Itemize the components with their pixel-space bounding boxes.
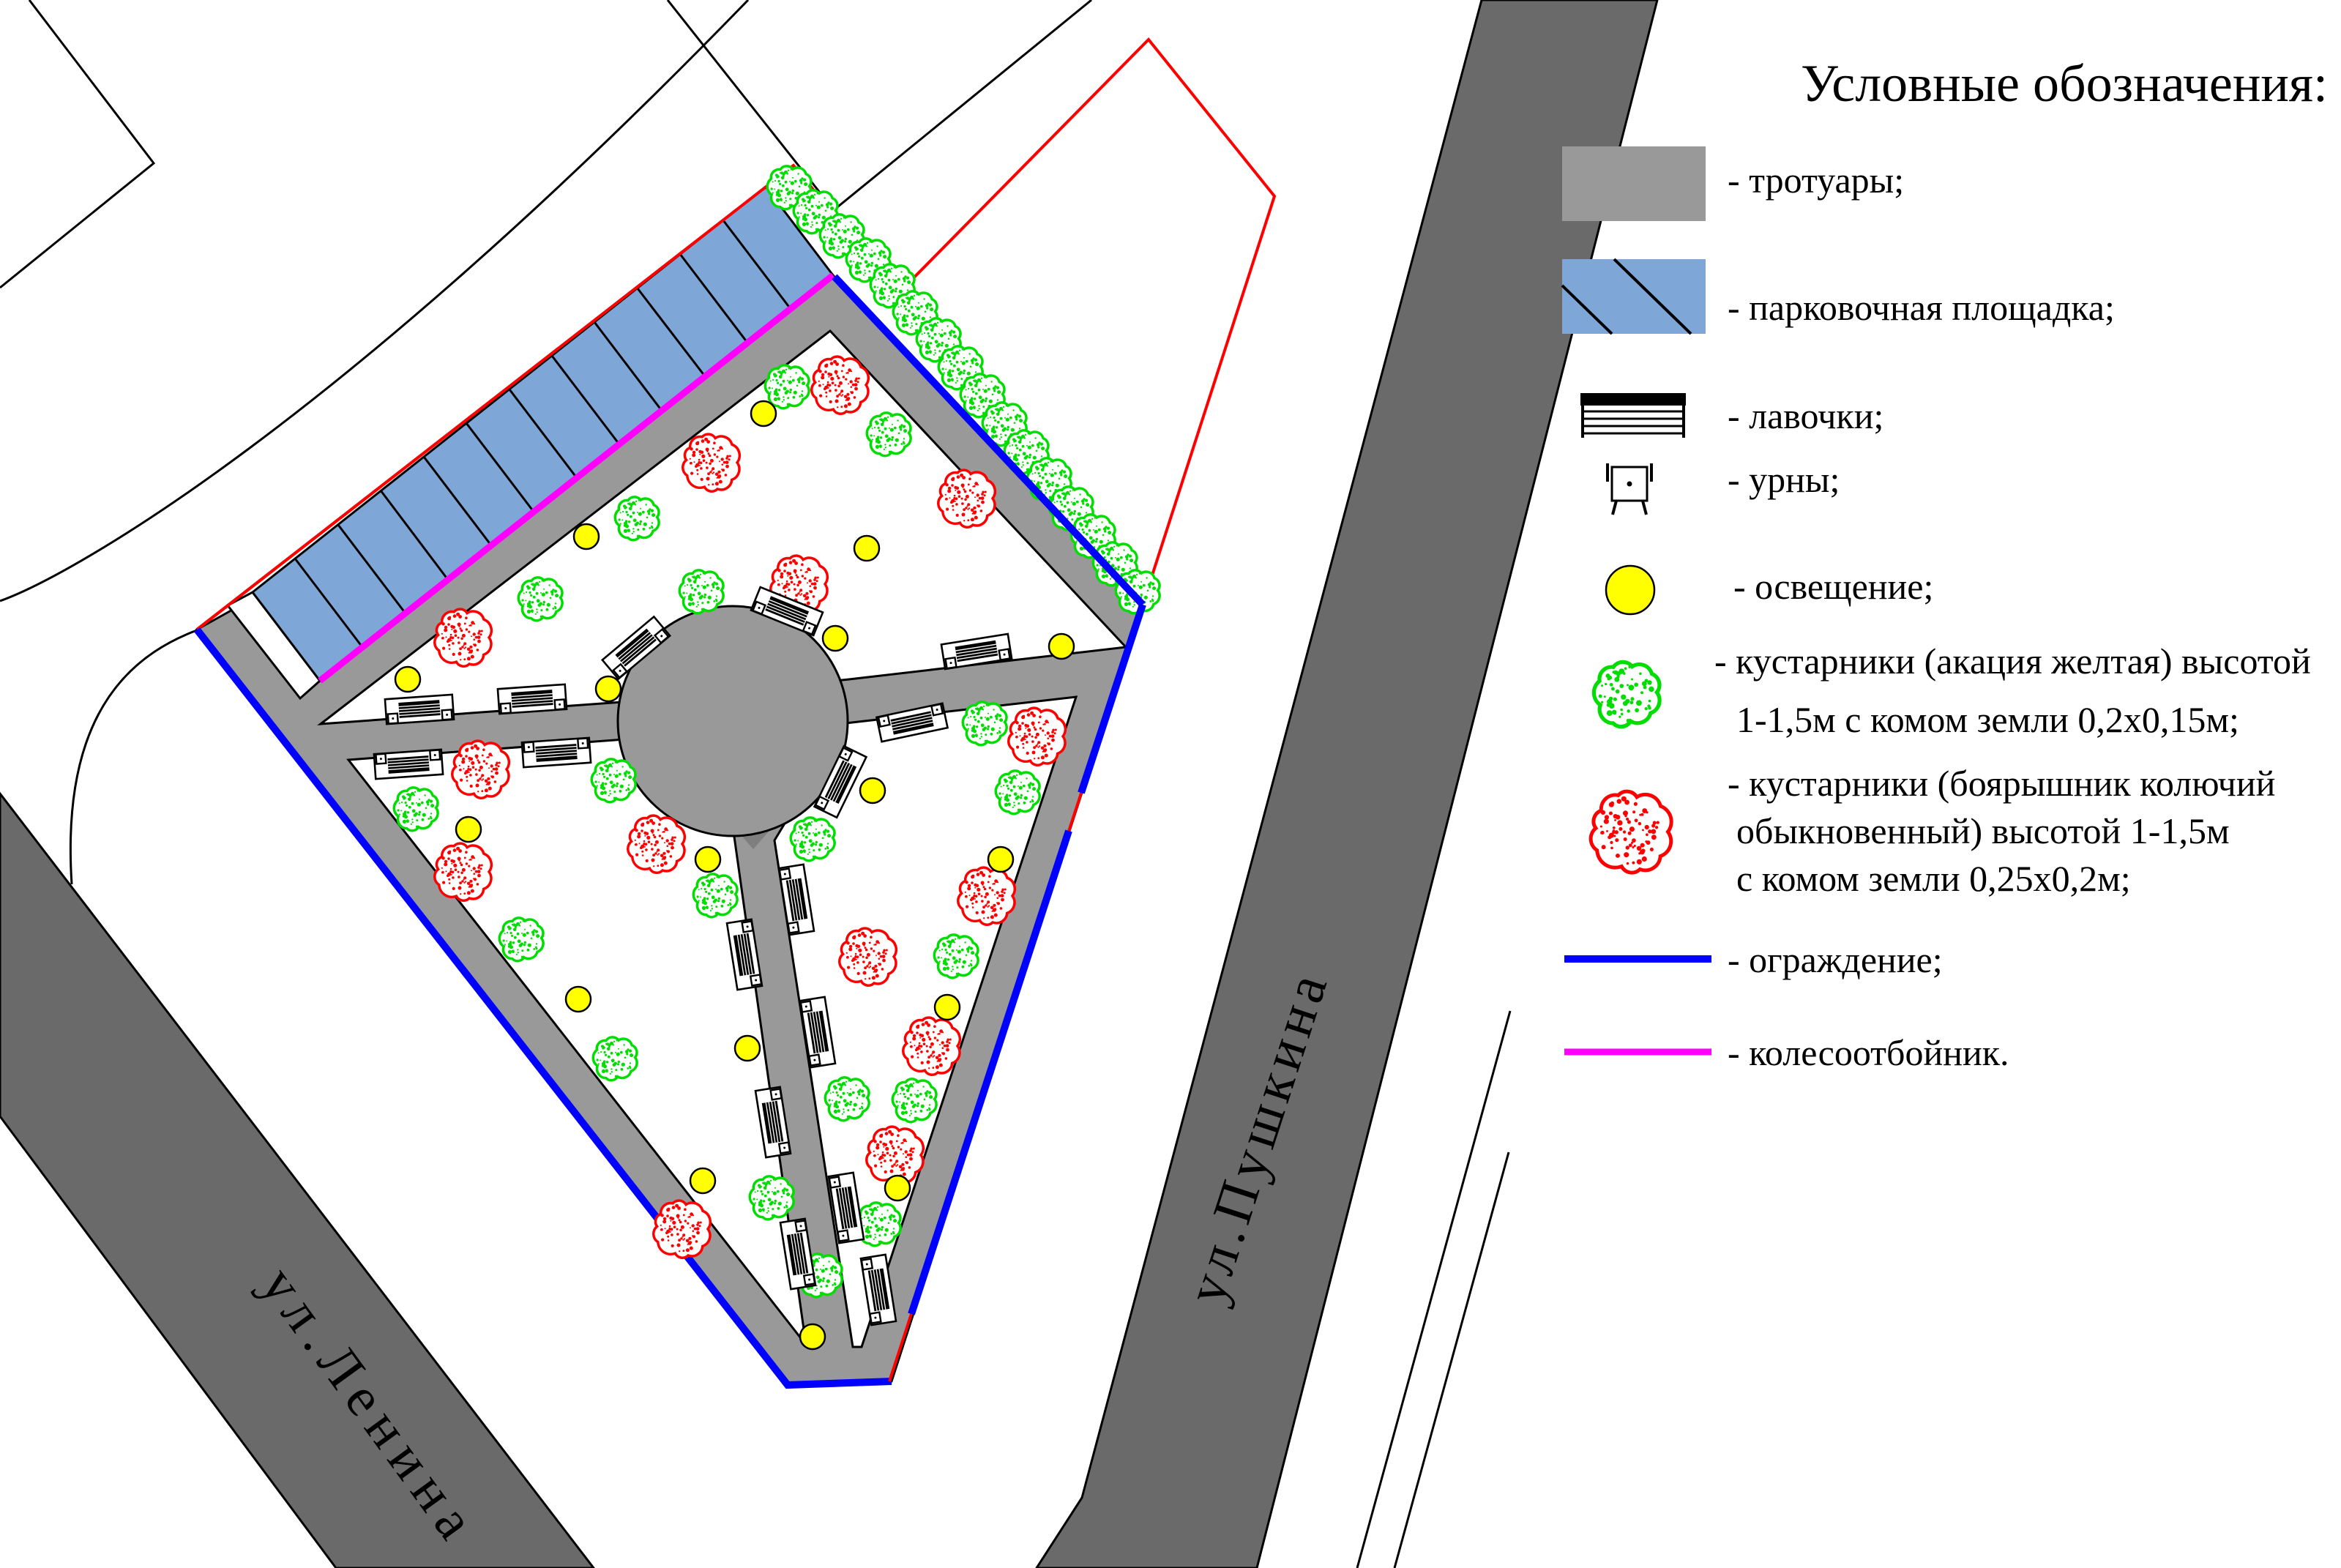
svg-text:обыкновенный) высотой 1-1,5м: обыкновенный) высотой 1-1,5м — [1736, 810, 2230, 851]
svg-text:1-1,5м с комом земли 0,2х0,15м: 1-1,5м с комом земли 0,2х0,15м; — [1736, 699, 2239, 740]
svg-text:- кустарники (акация желтая) в: - кустарники (акация желтая) высотой — [1714, 641, 2311, 682]
svg-text:- кустарники (боярышник колючи: - кустарники (боярышник колючий — [1728, 763, 2275, 804]
svg-text:- ограждение;: - ограждение; — [1728, 939, 1943, 980]
svg-text:- лавочки;: - лавочки; — [1728, 395, 1883, 436]
svg-text:- урны;: - урны; — [1728, 459, 1840, 500]
svg-text:с комом земли 0,25х0,2м;: с комом земли 0,25х0,2м; — [1736, 858, 2131, 899]
svg-text:Условные обозначения:: Условные обозначения: — [1801, 54, 2328, 113]
svg-text:- парковочная площадка;: - парковочная площадка; — [1728, 287, 2115, 328]
svg-text:- колесоотбойник.: - колесоотбойник. — [1728, 1032, 2009, 1073]
svg-text:- освещение;: - освещение; — [1733, 566, 1933, 607]
svg-text:- тротуары;: - тротуары; — [1728, 160, 1904, 201]
